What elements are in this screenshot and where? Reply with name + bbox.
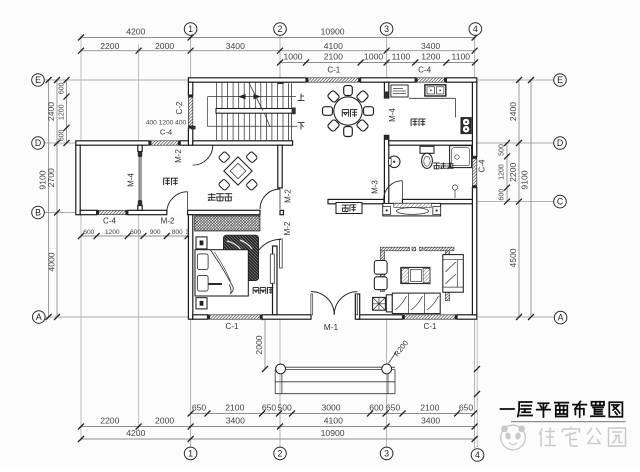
svg-text:400 1200 400: 400 1200 400 <box>146 120 187 127</box>
svg-text:3400: 3400 <box>421 41 440 51</box>
svg-text:A: A <box>558 313 564 323</box>
svg-text:10900: 10900 <box>321 27 345 37</box>
svg-text:4100: 4100 <box>324 41 343 51</box>
svg-text:4: 4 <box>475 450 480 460</box>
svg-text:M-3: M-3 <box>371 180 380 194</box>
svg-text:600: 600 <box>499 189 506 201</box>
svg-text:2400: 2400 <box>508 102 518 121</box>
svg-text:2000: 2000 <box>155 415 174 425</box>
svg-text:C-1: C-1 <box>424 322 437 331</box>
svg-text:C-2: C-2 <box>175 101 184 114</box>
svg-text:1: 1 <box>188 449 193 459</box>
svg-text:M-4: M-4 <box>388 108 397 122</box>
svg-text:3: 3 <box>384 449 389 459</box>
svg-text:500: 500 <box>277 402 292 412</box>
svg-text:A: A <box>36 312 42 322</box>
svg-text:M-1: M-1 <box>324 322 339 332</box>
svg-text:C-4: C-4 <box>418 66 431 75</box>
svg-text:2000: 2000 <box>155 41 174 51</box>
svg-text:600: 600 <box>369 402 384 412</box>
svg-text:4000: 4000 <box>47 252 57 271</box>
svg-text:2000: 2000 <box>254 335 264 354</box>
svg-text:2200: 2200 <box>100 41 119 51</box>
svg-text:2100: 2100 <box>225 402 244 412</box>
svg-text:800: 800 <box>172 229 183 236</box>
svg-text:C-4: C-4 <box>478 159 487 172</box>
svg-text:C-4: C-4 <box>103 216 116 225</box>
svg-text:600: 600 <box>130 229 141 236</box>
svg-text:M-2: M-2 <box>161 216 175 225</box>
svg-text:1200: 1200 <box>499 164 506 180</box>
svg-text:2200: 2200 <box>100 415 119 425</box>
svg-text:2: 2 <box>278 24 283 34</box>
svg-text:E: E <box>557 75 563 85</box>
svg-text:3000: 3000 <box>321 402 340 412</box>
svg-text:1200: 1200 <box>421 52 440 62</box>
svg-text:1000: 1000 <box>364 52 383 62</box>
svg-text:3400: 3400 <box>226 415 245 425</box>
svg-text:C-1: C-1 <box>226 322 239 331</box>
svg-text:650: 650 <box>262 402 277 412</box>
svg-text:600: 600 <box>59 129 66 141</box>
svg-text:B: B <box>35 208 41 218</box>
svg-text:9100: 9100 <box>520 170 530 189</box>
svg-text:650: 650 <box>459 402 474 412</box>
svg-text:4: 4 <box>473 24 478 34</box>
svg-text:3400: 3400 <box>421 415 440 425</box>
svg-text:650: 650 <box>386 402 401 412</box>
svg-text:2700: 2700 <box>46 168 56 187</box>
svg-text:1100: 1100 <box>452 52 471 62</box>
svg-text:1000: 1000 <box>283 52 302 62</box>
svg-text:C-4: C-4 <box>160 128 172 137</box>
svg-text:2100: 2100 <box>420 402 439 412</box>
svg-text:2200: 2200 <box>508 163 518 182</box>
svg-text:C-1: C-1 <box>327 66 340 75</box>
svg-text:2: 2 <box>278 449 283 459</box>
svg-text:3: 3 <box>384 24 389 34</box>
svg-text:1: 1 <box>188 24 193 34</box>
svg-text:10900: 10900 <box>321 428 345 438</box>
svg-text:M-2: M-2 <box>284 189 293 203</box>
svg-text:E: E <box>35 75 41 85</box>
svg-text:900: 900 <box>150 229 161 236</box>
svg-text:1200: 1200 <box>59 104 66 120</box>
svg-text:4100: 4100 <box>324 415 343 425</box>
svg-text:2100: 2100 <box>324 52 343 62</box>
svg-text:1100: 1100 <box>392 52 411 62</box>
svg-text:4200: 4200 <box>126 27 145 37</box>
svg-text:C: C <box>557 197 564 207</box>
svg-text:D: D <box>35 138 41 148</box>
svg-text:4500: 4500 <box>508 248 518 267</box>
svg-text:4200: 4200 <box>126 428 145 438</box>
svg-text:1200: 1200 <box>105 229 120 236</box>
svg-text:D: D <box>557 138 563 148</box>
svg-text:600: 600 <box>83 229 94 236</box>
svg-text:M-2: M-2 <box>174 149 183 163</box>
svg-text:3400: 3400 <box>226 41 245 51</box>
svg-text:650: 650 <box>192 402 207 412</box>
svg-text:M-4: M-4 <box>127 173 136 187</box>
svg-text:M-2: M-2 <box>283 221 292 235</box>
svg-text:2400: 2400 <box>46 102 56 121</box>
svg-text:600: 600 <box>59 82 66 94</box>
svg-text:500: 500 <box>499 144 506 156</box>
